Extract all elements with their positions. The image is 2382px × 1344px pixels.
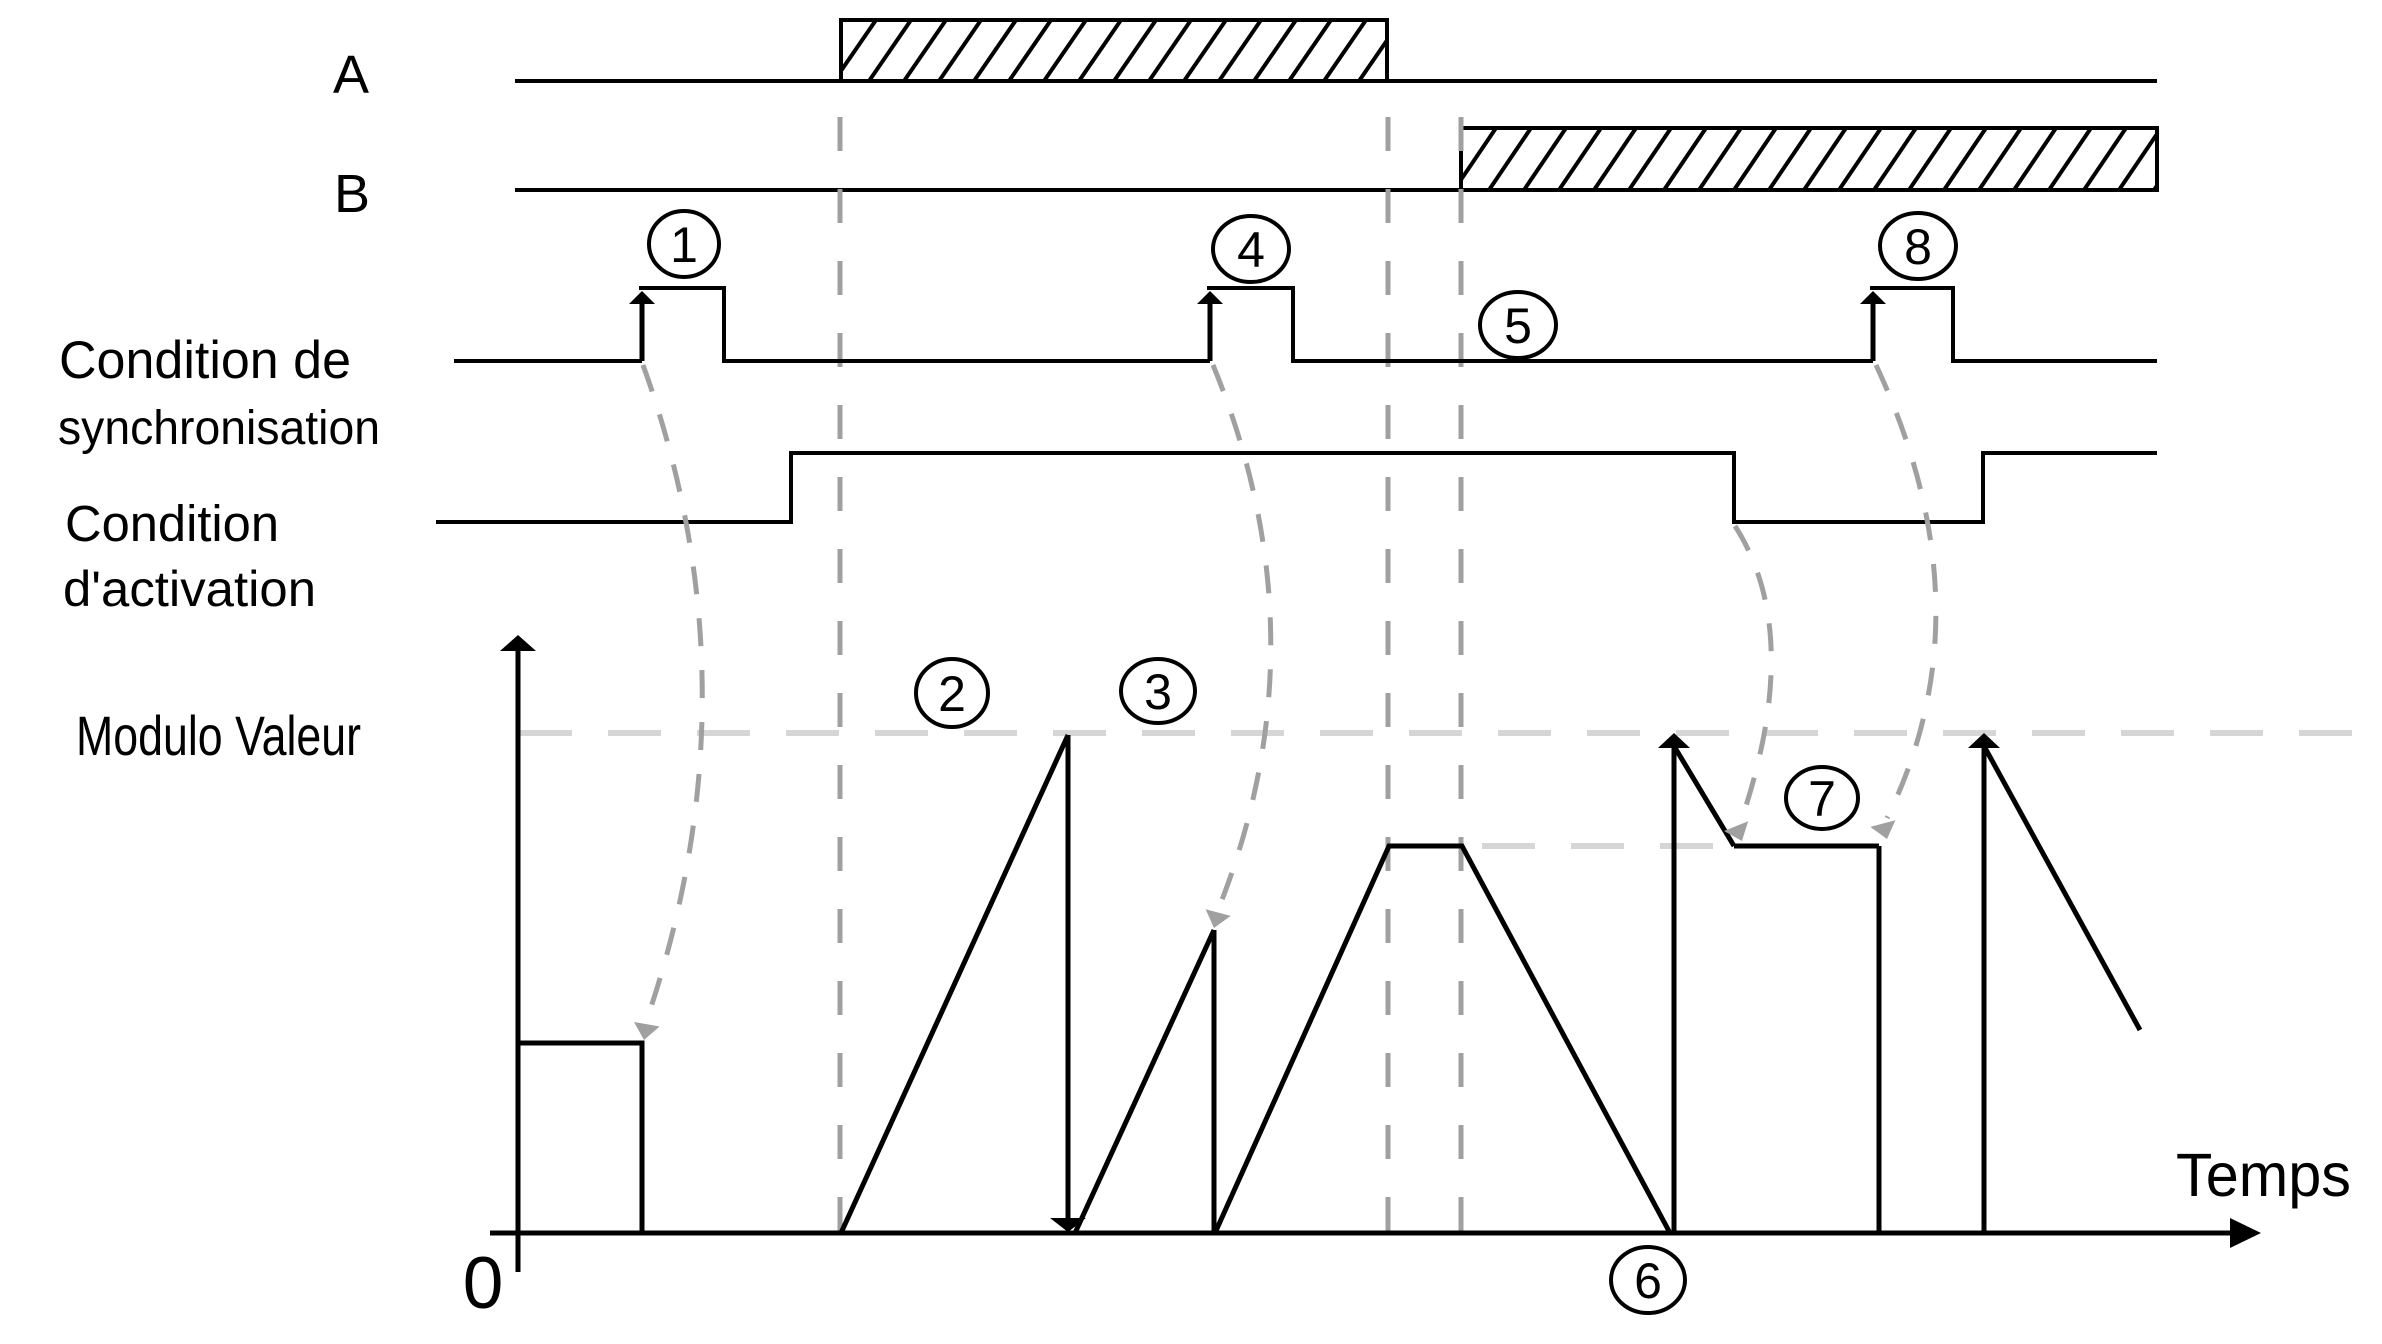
svg-text:2: 2 (938, 666, 966, 722)
svg-text:A: A (333, 45, 369, 105)
svg-text:Modulo Valeur: Modulo Valeur (76, 704, 361, 767)
svg-text:7: 7 (1808, 771, 1836, 827)
svg-text:5: 5 (1504, 298, 1532, 354)
svg-text:0: 0 (463, 1243, 504, 1324)
svg-text:synchronisation: synchronisation (58, 402, 380, 455)
svg-text:Condition: Condition (65, 495, 279, 552)
svg-text:8: 8 (1904, 219, 1932, 275)
svg-text:4: 4 (1237, 222, 1265, 278)
svg-text:3: 3 (1144, 664, 1172, 720)
svg-text:6: 6 (1634, 1253, 1662, 1309)
svg-text:1: 1 (670, 217, 698, 273)
svg-text:d'activation: d'activation (63, 561, 316, 617)
svg-text:Temps: Temps (2176, 1141, 2351, 1209)
svg-text:Condition de: Condition de (59, 331, 351, 390)
svg-text:B: B (334, 164, 370, 224)
